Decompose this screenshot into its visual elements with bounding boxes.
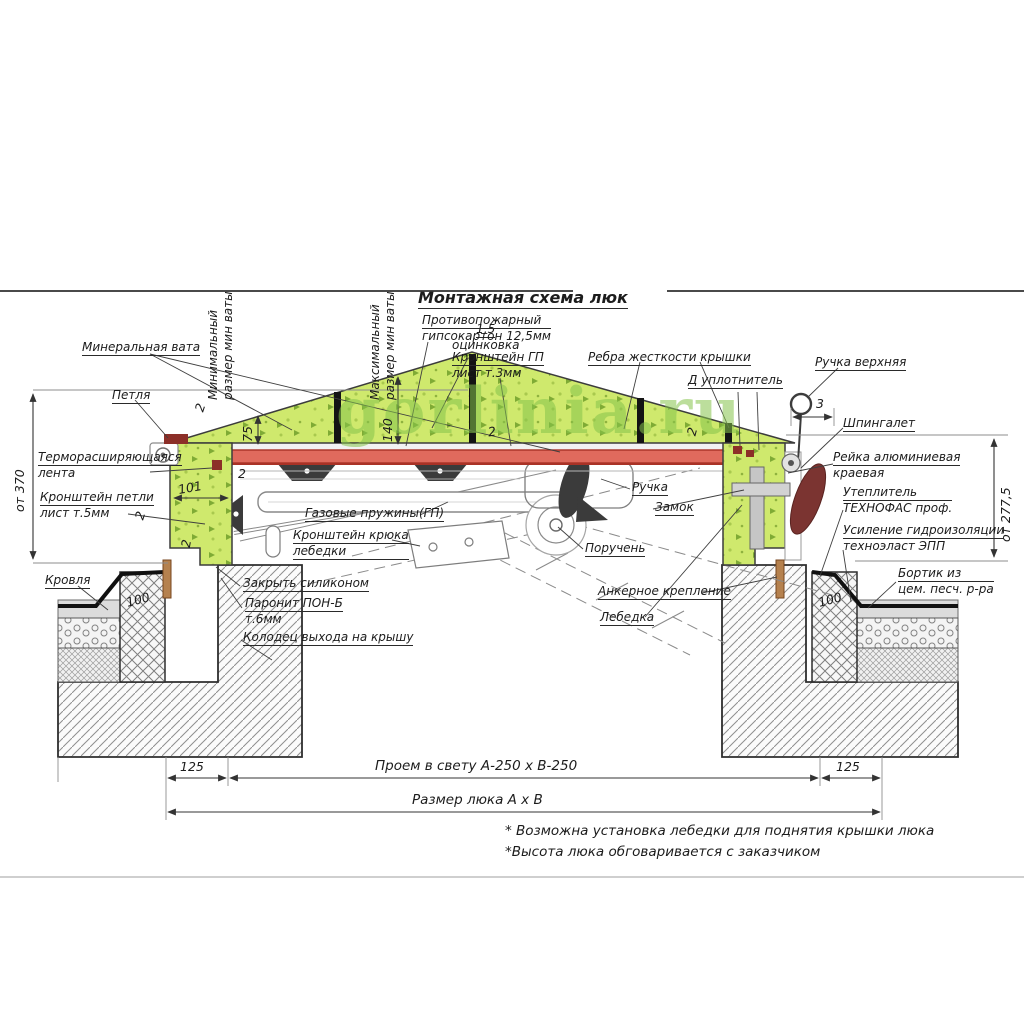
label-seal-d: Д уплотнитель	[688, 373, 783, 389]
label-handle: Ручка	[632, 480, 668, 496]
label-silicone: Закрыть силиконом	[243, 576, 369, 592]
label-min-wool-size: Минимальный размер мин ваты	[206, 291, 236, 400]
label-insulation: Утеплитель ТЕХНОФАС проф.	[843, 485, 952, 516]
label-winch-hook: Кронштейн крюка лебедки	[293, 528, 409, 560]
label-top-handle: Ручка верхняя	[815, 355, 906, 371]
note-height: *Высота люка обговаривается с заказчиком	[505, 844, 820, 860]
label-hinge: Петля	[112, 388, 150, 404]
label-winch: Лебедка	[600, 610, 654, 626]
label-max-wool-size: Максимальный размер мин ваты	[368, 291, 398, 400]
label-gp-bracket: Кронштейн ГП лист т.3мм	[452, 350, 544, 381]
dim-wool-min: 75	[240, 426, 255, 442]
label-paronite: Паронит ПОН-Б т.6мм	[245, 596, 343, 627]
label-fireproof: Противопожарный гипсокартон 12,5мм	[422, 313, 551, 344]
dim-wool-max: 140	[380, 418, 395, 442]
drawing-sheet: gorlinia.ru Монтажная схема люк Минераль…	[0, 0, 1024, 1024]
label-lock: Замок	[655, 500, 694, 516]
dim-3: 3	[816, 396, 824, 411]
dim-hatch-size: Размер люка А х В	[412, 792, 543, 808]
label-ribs: Ребра жесткости крышки	[588, 350, 751, 366]
dim-2-frame: 2	[238, 466, 246, 481]
label-roof: Кровля	[45, 573, 90, 589]
dim-height-left: от 370	[12, 469, 27, 512]
dim-125-right: 125	[836, 759, 860, 774]
label-shaft: Колодец выхода на крышу	[243, 630, 413, 646]
label-anchor: Анкерное крепление	[598, 584, 731, 600]
label-thermo-tape: Терморасширяющаяся лента	[38, 450, 182, 481]
label-waterproofing: Усиление гидроизоляции техноэласт ЭПП	[843, 523, 1004, 554]
label-mineral-wool: Минеральная вата	[82, 340, 200, 356]
label-gas-springs: Газовые пружины(ГП)	[305, 506, 444, 522]
drawing-title: Монтажная схема люк	[418, 288, 628, 309]
label-curb: Бортик из цем. песч. р-ра	[898, 566, 994, 597]
label-handrail: Поручень	[585, 541, 645, 557]
dim-opening: Проем в свету А-250 х В-250	[375, 758, 577, 774]
dim-height-right: от 277,5	[998, 487, 1013, 542]
dim-125-left: 125	[180, 759, 204, 774]
note-winch: * Возможна установка лебедки для подняти…	[505, 823, 934, 839]
label-latch: Шпингалет	[843, 416, 915, 432]
label-alu-rail: Рейка алюминиевая краевая	[833, 450, 960, 481]
